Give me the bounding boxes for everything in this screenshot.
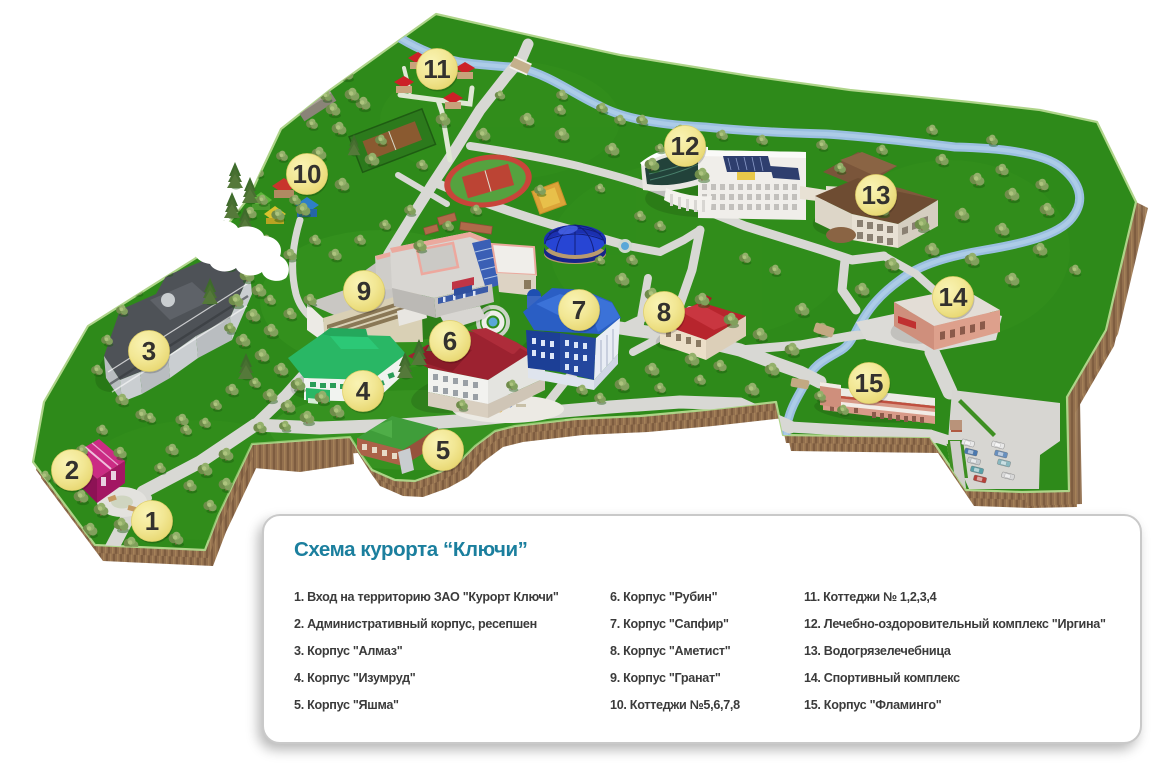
svg-text:3: 3: [142, 336, 156, 366]
svg-text:8: 8: [657, 297, 671, 327]
svg-text:6: 6: [443, 326, 457, 356]
svg-text:15: 15: [855, 368, 884, 398]
svg-text:1: 1: [145, 506, 159, 536]
svg-text:2: 2: [65, 455, 79, 485]
svg-text:10: 10: [293, 159, 322, 189]
svg-text:14: 14: [939, 282, 968, 312]
svg-text:11: 11: [423, 54, 451, 84]
svg-text:12: 12: [671, 131, 700, 161]
svg-text:7: 7: [572, 295, 586, 325]
svg-text:4: 4: [356, 376, 371, 406]
svg-text:9: 9: [357, 276, 371, 306]
svg-text:13: 13: [862, 180, 891, 210]
svg-text:5: 5: [436, 435, 450, 465]
